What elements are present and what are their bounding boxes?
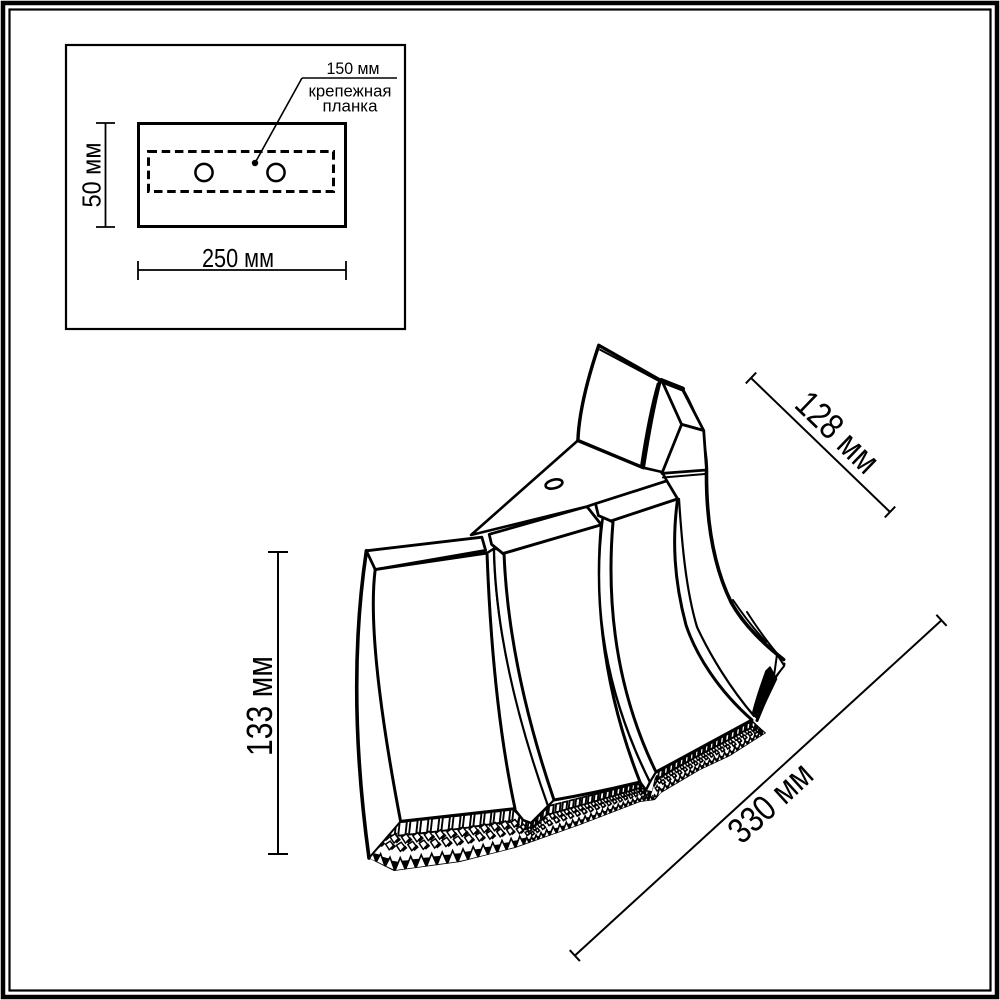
svg-text:50 мм: 50 мм — [79, 143, 107, 208]
svg-text:150 мм: 150 мм — [327, 60, 380, 78]
svg-text:планка: планка — [323, 98, 379, 116]
svg-text:250 мм: 250 мм — [202, 245, 274, 273]
svg-text:133 мм: 133 мм — [239, 656, 280, 756]
